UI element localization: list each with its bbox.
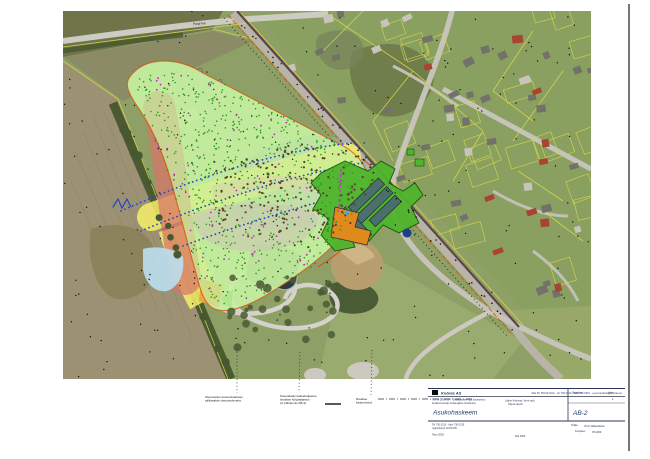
sheet-number-value: 1 bbox=[612, 397, 614, 401]
project-label: Kuupäev bbox=[575, 429, 586, 433]
svg-text:keskkonnamõju strateegiline hi: keskkonnamõju strateegiline hindamine bbox=[432, 402, 476, 405]
sheet-title: Asukohaskeem bbox=[432, 410, 478, 417]
svg-text:säilitatakse olemasolevana: säilitatakse olemasolevana bbox=[205, 399, 241, 403]
plan-sheet: Pargi tee Olemasolev kuivenduskraav, säi… bbox=[0, 0, 650, 459]
project-value: 05.2009 bbox=[592, 430, 602, 434]
date-note: Mai 2009 bbox=[515, 435, 526, 438]
client-label: Tellija bbox=[571, 423, 578, 427]
svg-text:(vt põhijoonis AB-3): (vt põhijoonis AB-3) bbox=[280, 401, 306, 405]
drawing-code: AB-2 bbox=[572, 410, 588, 417]
svg-text:Pajusti alevik: Pajusti alevik bbox=[508, 403, 523, 406]
client-value: Vinni Vallavalitsus bbox=[584, 424, 605, 428]
company-name: Kobras AS bbox=[441, 391, 462, 396]
svg-text:Tartu 2009: Tartu 2009 bbox=[432, 434, 444, 437]
company-logo-icon bbox=[432, 390, 438, 395]
sheet-overlay: Olemasolev kuivenduskraav, säilitatakse … bbox=[0, 0, 650, 459]
map-annotations: Olemasolev kuivenduskraav, säilitatakse … bbox=[205, 394, 372, 405]
stage-label: Staadium bbox=[572, 392, 583, 395]
sheet-number-label: Leht bbox=[608, 392, 613, 395]
svg-text:registrikood 10171636: registrikood 10171636 bbox=[432, 427, 457, 430]
title-block: Kobras AS Riia 35, 50410 Tartu · tel 730… bbox=[428, 389, 625, 439]
svg-text:kaitsevöönd: kaitsevöönd bbox=[356, 401, 372, 405]
leader-lines bbox=[237, 345, 472, 404]
